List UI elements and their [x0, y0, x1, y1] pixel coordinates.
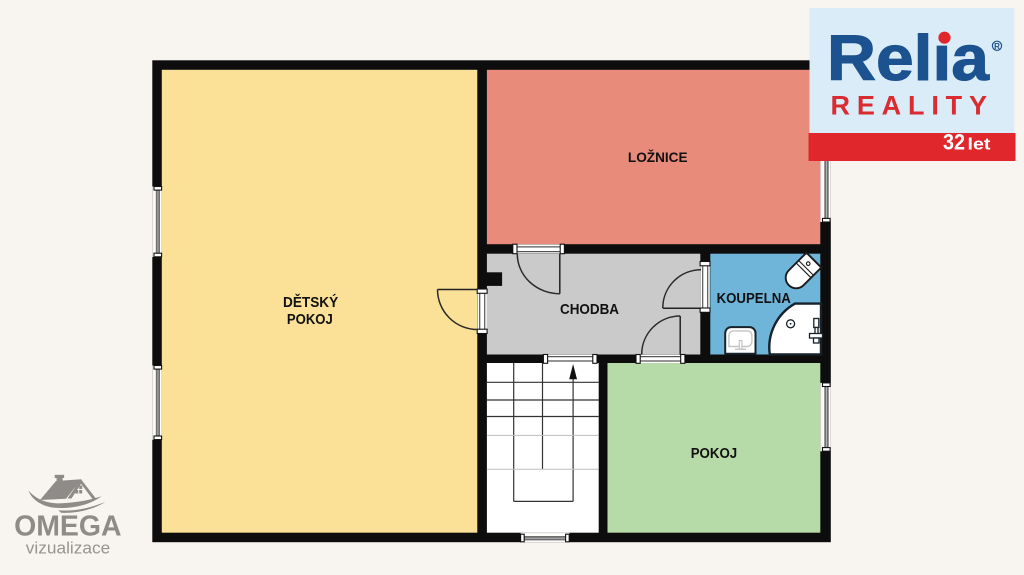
svg-text:32: 32 [943, 130, 965, 155]
svg-text:DĚTSKÝ: DĚTSKÝ [283, 293, 338, 311]
svg-text:CHODBA: CHODBA [560, 301, 619, 318]
svg-text:POKOJ: POKOJ [691, 446, 738, 462]
svg-text:LOŽNICE: LOŽNICE [628, 148, 688, 165]
svg-text:KOUPELNA: KOUPELNA [717, 291, 792, 307]
svg-text:OMEGA: OMEGA [14, 510, 122, 542]
svg-text:let: let [968, 135, 991, 154]
svg-text:R: R [994, 42, 1000, 51]
svg-text:vizualizace: vizualizace [26, 539, 110, 558]
svg-text:POKOJ: POKOJ [287, 312, 333, 328]
svg-text:Relia: Relia [827, 22, 989, 94]
